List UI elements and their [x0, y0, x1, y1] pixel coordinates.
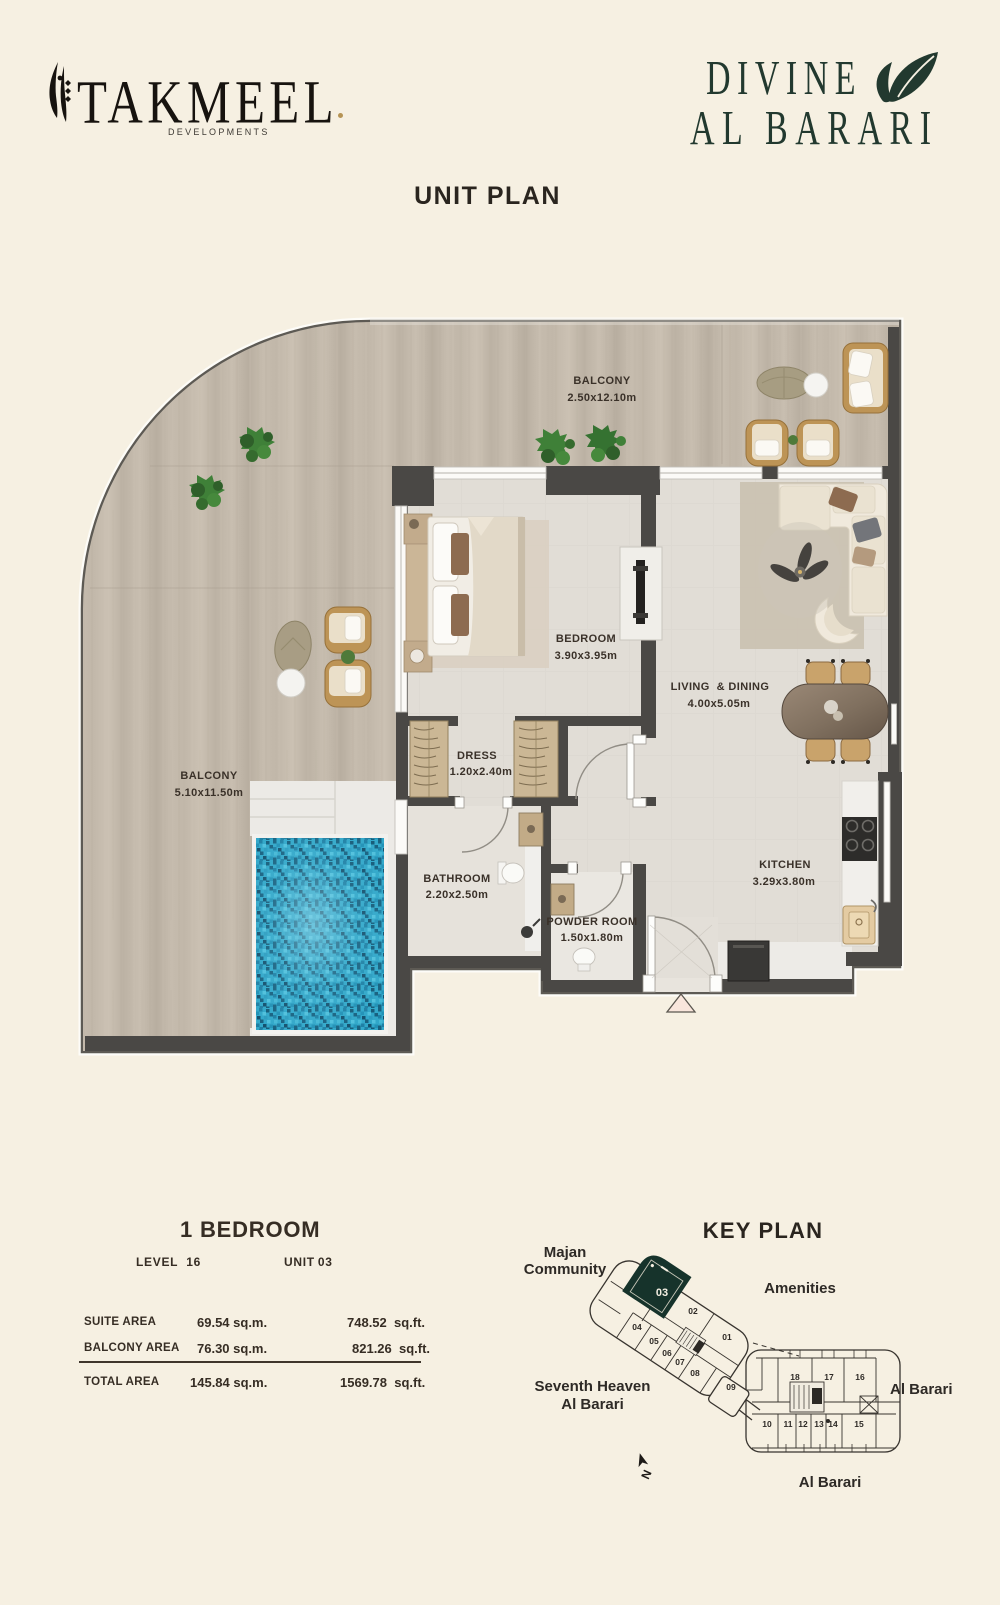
- svg-text:KITCHEN: KITCHEN: [759, 859, 811, 871]
- svg-text:01: 01: [722, 1332, 732, 1342]
- svg-text:14: 14: [828, 1419, 838, 1429]
- svg-text:3.90x3.95m: 3.90x3.95m: [555, 650, 618, 662]
- svg-text:07: 07: [675, 1357, 685, 1367]
- svg-text:13: 13: [814, 1419, 824, 1429]
- svg-text:5.10x11.50m: 5.10x11.50m: [175, 787, 244, 799]
- svg-text:BEDROOM: BEDROOM: [556, 633, 616, 645]
- svg-text:N: N: [638, 1468, 654, 1482]
- svg-text:02: 02: [688, 1306, 698, 1316]
- svg-text:12: 12: [798, 1419, 808, 1429]
- svg-text:03: 03: [656, 1287, 668, 1299]
- svg-text:04: 04: [632, 1322, 642, 1332]
- svg-text:1.20x2.40m: 1.20x2.40m: [450, 766, 513, 778]
- svg-text:BALCONY: BALCONY: [180, 770, 237, 782]
- svg-text:05: 05: [649, 1336, 659, 1346]
- svg-text:DRESS: DRESS: [457, 750, 497, 762]
- svg-text:3.29x3.80m: 3.29x3.80m: [753, 876, 816, 888]
- svg-text:BALCONY: BALCONY: [573, 375, 630, 387]
- svg-text:09: 09: [726, 1382, 736, 1392]
- svg-text:11: 11: [784, 1419, 793, 1429]
- svg-text:06: 06: [662, 1348, 672, 1358]
- svg-text:2.20x2.50m: 2.20x2.50m: [426, 889, 489, 901]
- svg-text:15: 15: [854, 1419, 864, 1429]
- svg-text:17: 17: [824, 1372, 834, 1382]
- svg-text:2.50x12.10m: 2.50x12.10m: [567, 392, 636, 404]
- svg-text:POWDER ROOM: POWDER ROOM: [546, 916, 637, 928]
- svg-text:4.00x5.05m: 4.00x5.05m: [688, 698, 751, 710]
- svg-text:08: 08: [690, 1368, 700, 1378]
- svg-text:1.50x1.80m: 1.50x1.80m: [561, 932, 624, 944]
- svg-text:16: 16: [855, 1372, 865, 1382]
- svg-text:LIVING & DINING: LIVING & DINING: [671, 681, 770, 693]
- svg-text:18: 18: [790, 1372, 800, 1382]
- svg-text:10: 10: [762, 1419, 772, 1429]
- svg-text:BATHROOM: BATHROOM: [423, 873, 490, 885]
